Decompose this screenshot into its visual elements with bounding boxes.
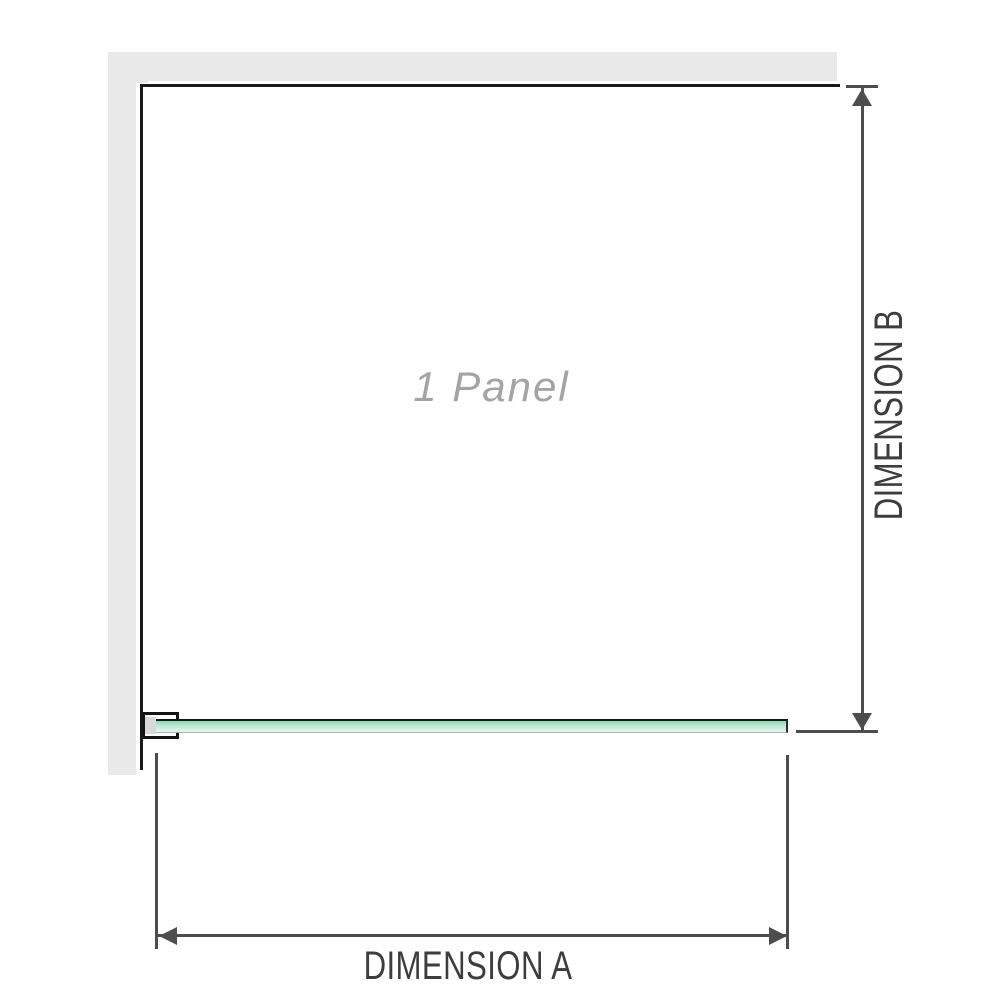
dim-b-line — [861, 88, 864, 730]
glass-panel-bar — [156, 719, 788, 733]
dim-a-line — [158, 934, 788, 937]
wall-top — [108, 52, 837, 81]
dim-a-arrow-left-icon — [159, 927, 177, 945]
dim-a-label: DIMENSION A — [364, 946, 573, 986]
panel-label: 1 Panel — [143, 363, 840, 411]
dim-b-arrow-down-icon — [852, 713, 872, 730]
dim-a-arrow-right-icon — [769, 927, 787, 945]
dim-b-tick-bottom — [796, 730, 878, 733]
wall-corner — [136, 52, 148, 83]
wall-left — [108, 52, 136, 775]
dim-a-ext-left — [155, 753, 158, 949]
dim-b-arrow-up-icon — [852, 89, 872, 106]
bracket-pad — [145, 717, 156, 734]
shower-panel-diagram: 1 Panel DIMENSION B DIMENSION A — [0, 0, 1000, 1000]
dim-a-ext-right — [786, 755, 789, 949]
panel-outline: 1 Panel — [140, 84, 840, 770]
dim-b-label: DIMENSION B — [869, 310, 909, 521]
